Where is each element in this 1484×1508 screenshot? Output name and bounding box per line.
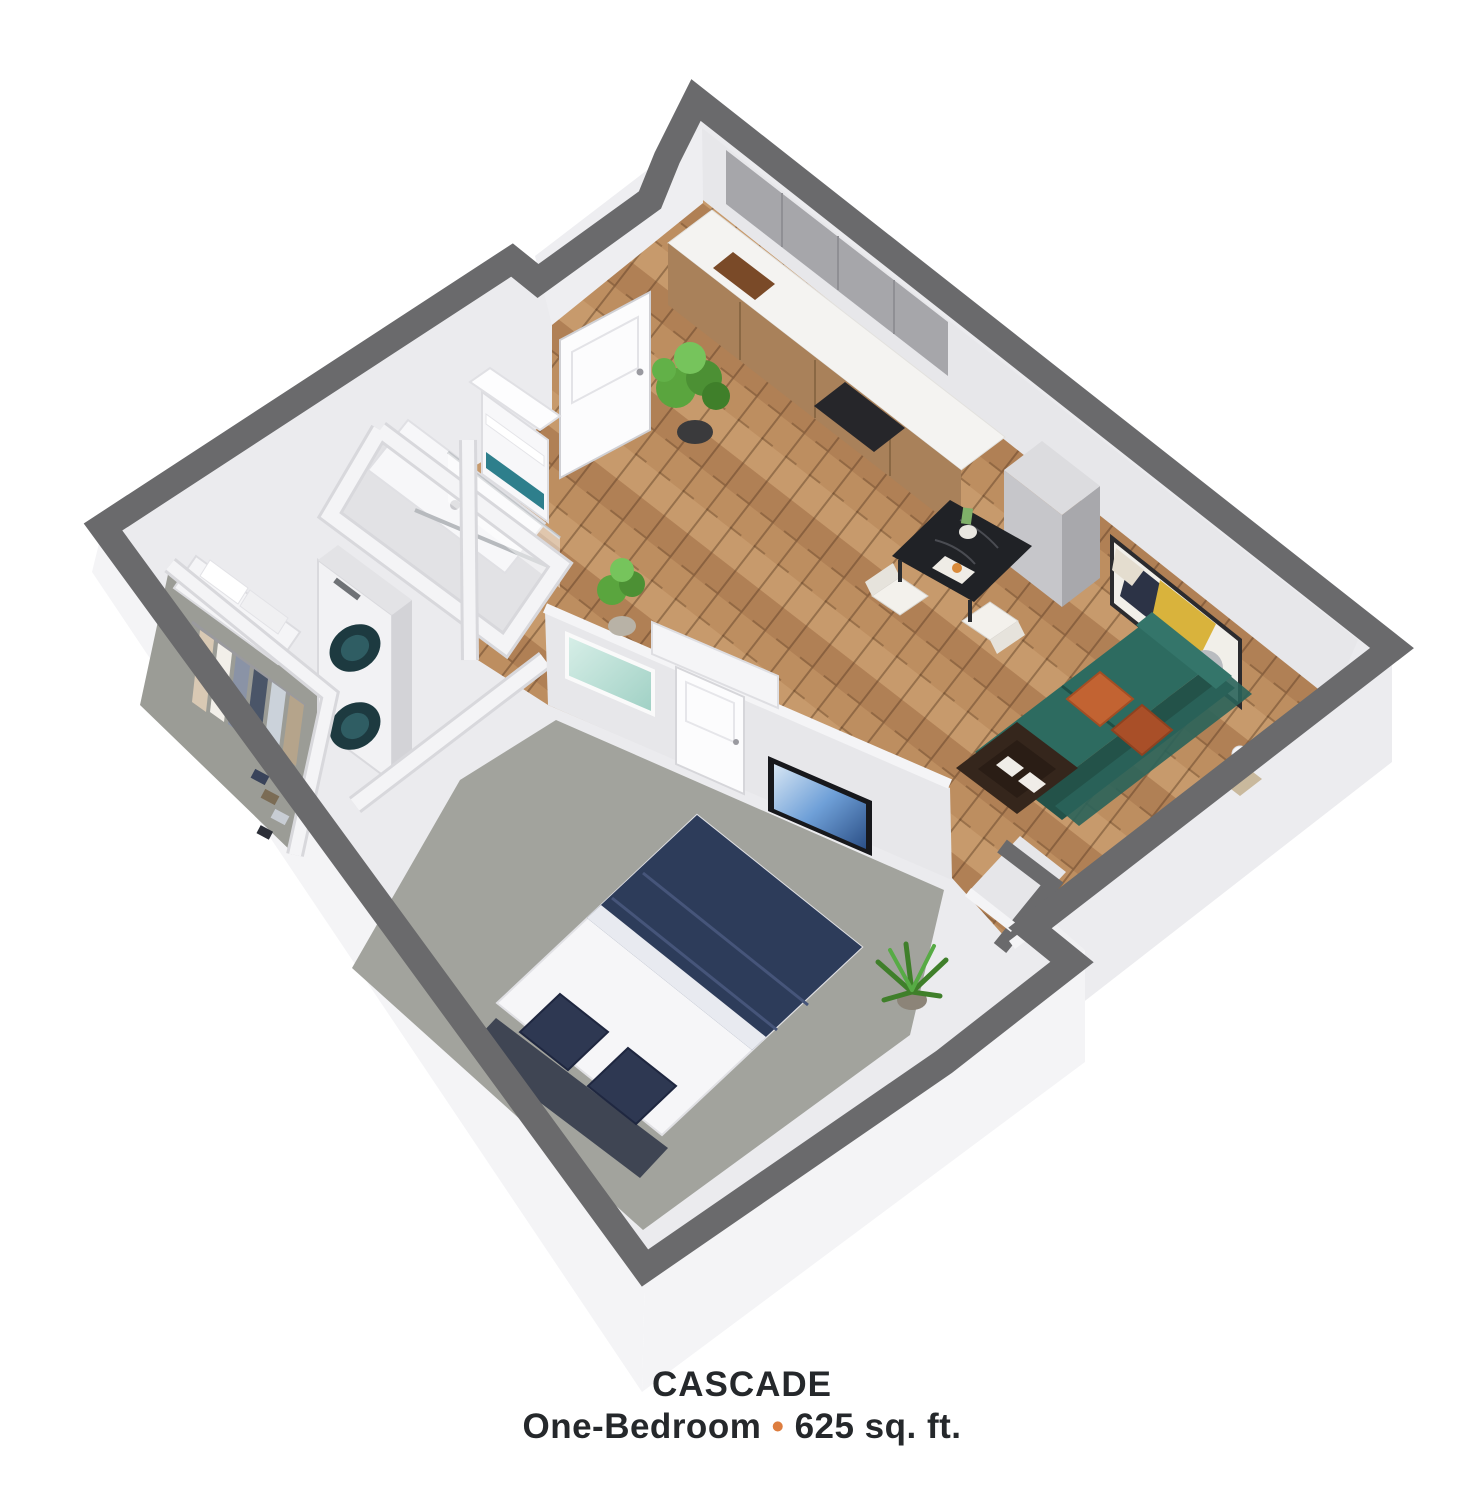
plan-area: 625 sq. ft. bbox=[795, 1407, 962, 1446]
table-vase bbox=[959, 525, 977, 539]
caption: CASCADE One-Bedroom • 625 sq. ft. bbox=[522, 1365, 961, 1446]
plan-title: CASCADE bbox=[652, 1365, 832, 1404]
door-handle bbox=[637, 369, 644, 376]
floorplan-rendering: CASCADE One-Bedroom • 625 sq. ft. bbox=[0, 0, 1484, 1508]
plan-subtitle: One-Bedroom • 625 sq. ft. bbox=[522, 1407, 961, 1446]
plan-type: One-Bedroom bbox=[522, 1407, 761, 1446]
subtitle-bullet: • bbox=[772, 1407, 785, 1446]
floorplan-page: CASCADE One-Bedroom • 625 sq. ft. bbox=[0, 0, 1484, 1508]
